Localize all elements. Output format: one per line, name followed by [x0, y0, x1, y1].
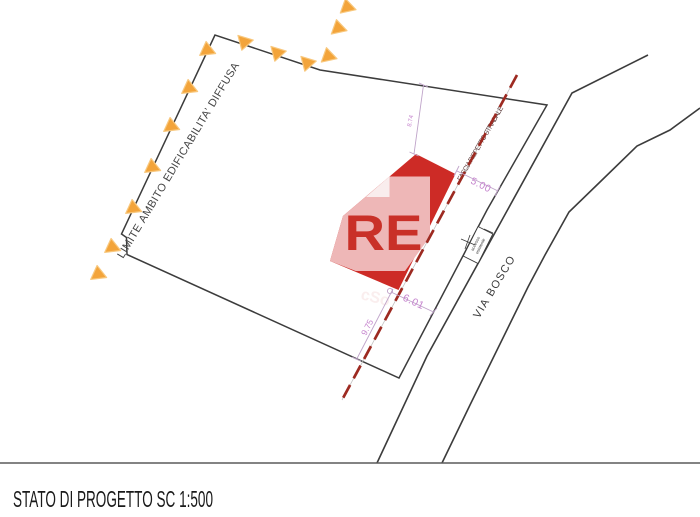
svg-text:RE: RE	[345, 205, 423, 261]
svg-text:STATO DI PROGETTO SC 1:500: STATO DI PROGETTO SC 1:500	[13, 486, 213, 512]
